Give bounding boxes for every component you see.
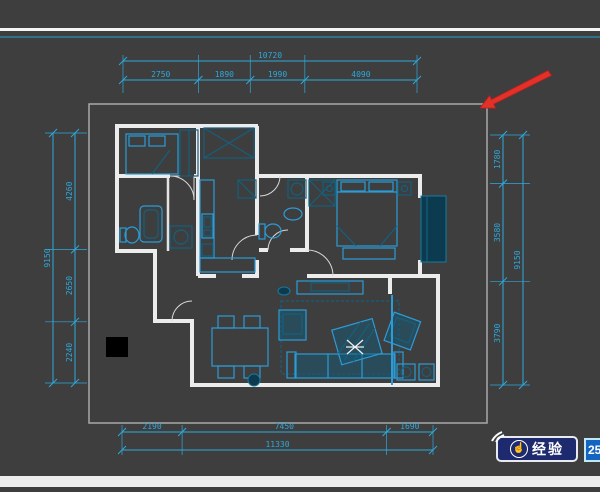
svg-text:1690: 1690	[400, 422, 419, 431]
hand-icon: ☝	[510, 440, 528, 458]
bathtub	[140, 206, 162, 242]
svg-text:9150: 9150	[43, 248, 52, 267]
svg-text:1990: 1990	[268, 70, 287, 79]
wardrobe-master	[309, 180, 335, 206]
entry-cabinet	[204, 128, 254, 158]
svg-text:9150: 9150	[513, 250, 522, 269]
floorplan-drawing[interactable]: 2750189019904090107202190745016901133042…	[0, 0, 600, 487]
svg-text:2750: 2750	[151, 70, 170, 79]
furniture-layer	[120, 128, 446, 386]
svg-text:2190: 2190	[142, 422, 161, 431]
washer-bath	[288, 180, 306, 198]
svg-text:1890: 1890	[215, 70, 234, 79]
tv-cabinet	[278, 281, 363, 295]
black-square-marker	[106, 337, 128, 357]
claw-icon	[490, 429, 506, 448]
window-top-divider	[0, 28, 600, 31]
svg-text:4260: 4260	[65, 181, 74, 200]
svg-text:2240: 2240	[65, 343, 74, 362]
svg-text:7450: 7450	[275, 422, 294, 431]
svg-text:4090: 4090	[351, 70, 370, 79]
bay-window	[421, 196, 446, 262]
kitchen-counter	[200, 180, 256, 272]
toolbar-divider	[0, 36, 600, 38]
sink-bath	[284, 208, 302, 220]
bed-master	[337, 180, 397, 246]
cad-canvas: 2750189019904090107202190745016901133042…	[0, 0, 600, 487]
svg-text:2650: 2650	[65, 276, 74, 295]
score-box: 250	[584, 438, 600, 462]
dining-set	[212, 316, 268, 378]
svg-text:1780: 1780	[493, 150, 502, 169]
wardrobe-secondary	[180, 130, 198, 176]
svg-text:3580: 3580	[493, 223, 502, 242]
watermark-label: 经验	[532, 439, 564, 459]
bed-bench	[343, 248, 395, 259]
plant	[248, 374, 260, 386]
watermark-badge: ☝ 经验	[496, 436, 578, 462]
washer-left	[170, 226, 192, 248]
page-bottom-strip	[0, 476, 600, 487]
svg-text:3790: 3790	[493, 323, 502, 342]
nightstands	[323, 182, 411, 195]
svg-text:10720: 10720	[258, 51, 282, 60]
bed-secondary	[126, 134, 178, 174]
toilet-bath	[259, 224, 281, 239]
viewport-rect	[89, 104, 487, 423]
red-arrow-annotation	[480, 71, 552, 109]
svg-text:11330: 11330	[265, 440, 289, 449]
toilet-left	[120, 227, 139, 243]
